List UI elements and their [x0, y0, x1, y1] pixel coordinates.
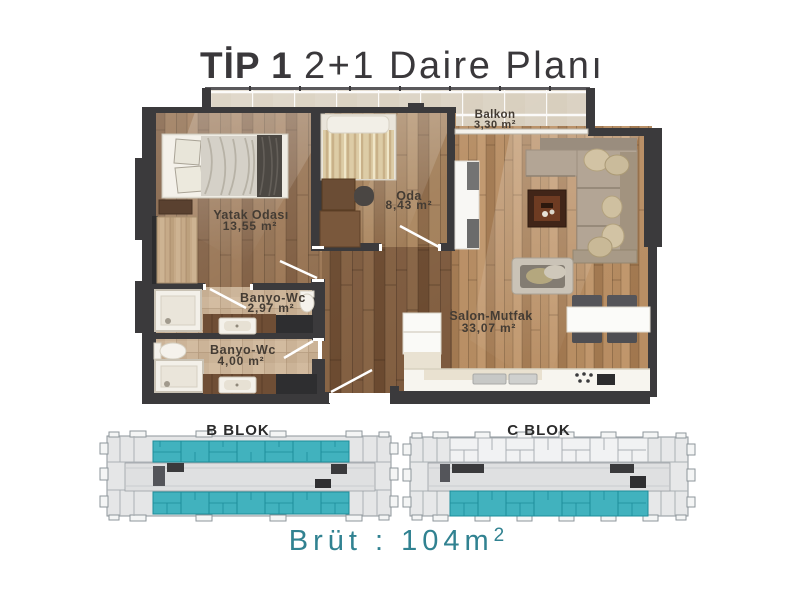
- svg-text:C BLOK: C BLOK: [507, 422, 571, 439]
- svg-text:2,97 m²: 2,97 m²: [248, 301, 295, 315]
- svg-text:TİP 1: TİP 1: [200, 45, 293, 86]
- svg-text:Brüt : 104m2: Brüt : 104m2: [289, 525, 509, 557]
- svg-text:3,30 m²: 3,30 m²: [474, 119, 516, 131]
- svg-text:8,43 m²: 8,43 m²: [386, 198, 433, 212]
- svg-text:13,55 m²: 13,55 m²: [223, 219, 277, 233]
- svg-text:2+1 Daire Planı: 2+1 Daire Planı: [304, 45, 605, 87]
- svg-text:B BLOK: B BLOK: [206, 422, 270, 439]
- svg-text:33,07 m²: 33,07 m²: [462, 321, 516, 335]
- svg-text:4,00 m²: 4,00 m²: [218, 354, 265, 368]
